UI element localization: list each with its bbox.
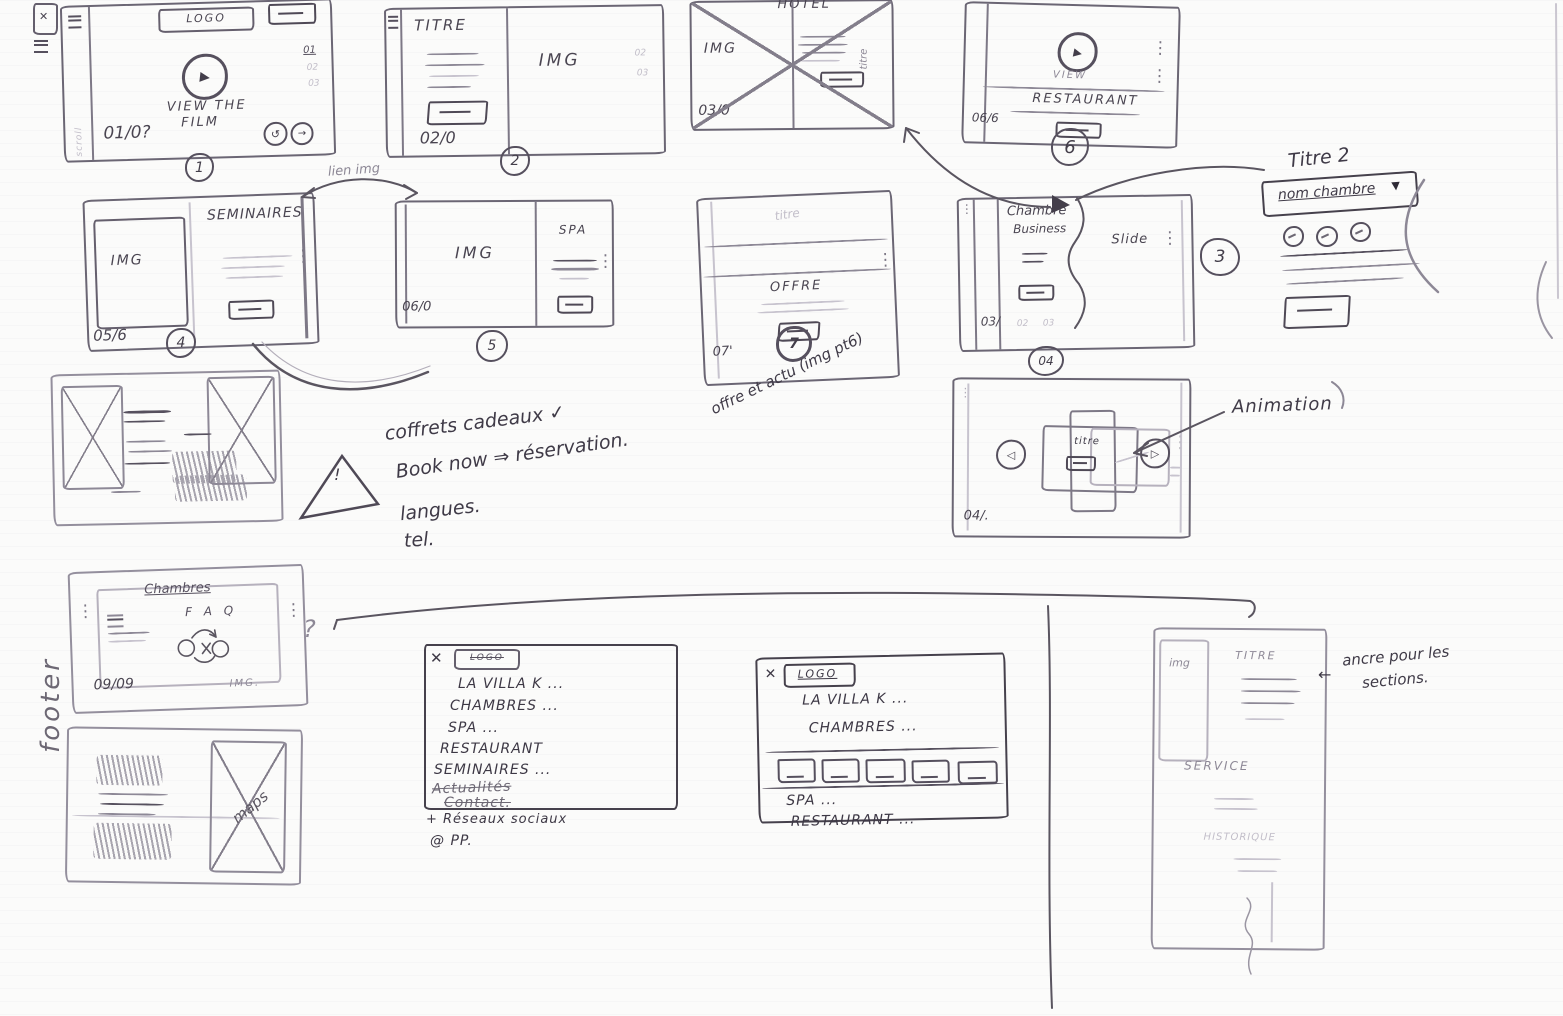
anchor-note-line2: sections. — [1361, 669, 1429, 692]
wireframe-home: LOGO ▶ VIEW THE FILM 01/0? 01 02 03 ↺ → … — [60, 0, 336, 163]
slide-label: Slide — [1111, 233, 1148, 249]
edge-curve-artifact — [1537, 262, 1552, 338]
close-icon: ✕ — [39, 11, 48, 24]
text-line — [427, 53, 479, 56]
menu-item-restaurant: RESTAURANT — [440, 741, 543, 757]
loop-glyph: ↺ — [271, 127, 281, 140]
book-button — [268, 3, 317, 25]
wireframe-collage — [50, 370, 283, 527]
section-title: SPA — [559, 224, 588, 238]
sidebar-divider — [88, 7, 94, 160]
section-historique: HISTORIQUE — [1204, 832, 1276, 844]
amenity-icon — [1283, 226, 1304, 247]
page-badge-5: 5 — [476, 330, 508, 362]
slide-button — [1066, 456, 1096, 471]
text-line — [1170, 475, 1180, 477]
text-line — [221, 265, 285, 269]
page-number: 06/0 — [402, 300, 431, 315]
band-title: titre — [774, 207, 801, 224]
text-line — [761, 300, 845, 306]
amenity-icon — [1350, 222, 1371, 242]
page-number: 03/ — [981, 315, 1001, 329]
text-line — [1241, 690, 1301, 693]
title-label: TITRE — [414, 17, 467, 35]
room-title-line2: Business — [1013, 222, 1066, 237]
col-divider — [973, 200, 978, 350]
warning-exclamation: ! — [334, 466, 340, 484]
view-label: VIEW — [1053, 70, 1087, 82]
prev-glyph: ◁ — [1007, 448, 1016, 461]
lien-img-arrow — [302, 179, 417, 199]
text-line — [222, 255, 292, 259]
text-line — [98, 793, 168, 796]
logo-label: LOGO — [470, 653, 504, 663]
text-line — [1237, 870, 1277, 872]
text-line — [425, 64, 485, 67]
room-thumbnail-icon — [958, 761, 998, 785]
slide-pager-current: 01 — [303, 45, 316, 57]
page-badge-04: 04 — [1028, 346, 1064, 376]
text-line — [126, 440, 166, 443]
img-label: img — [1169, 657, 1190, 670]
page-badge-6: 6 — [1051, 128, 1089, 166]
pager-mark: 02 — [1017, 319, 1029, 330]
text-line — [1241, 678, 1297, 680]
logo-label: LOGO — [186, 12, 226, 26]
more-dots-icon: ⋮ — [876, 250, 894, 271]
room-cta-button — [1283, 295, 1351, 329]
share-icon: ↺ — [263, 122, 288, 147]
note-coffrets: coffrets cadeaux ✓ — [384, 402, 567, 446]
logo-label: LOGO — [798, 668, 838, 681]
page-number: 02/0 — [420, 129, 456, 148]
wireframe-maps: maps — [65, 726, 303, 885]
text-line — [1245, 718, 1285, 720]
right-rail — [1180, 383, 1183, 533]
img-label: IMG — [539, 51, 581, 71]
anchor-arrow-icon: ← — [1318, 666, 1331, 684]
section-title: RESTAURANT — [1032, 92, 1139, 110]
text-line — [757, 308, 849, 314]
text-line — [1280, 249, 1408, 258]
next-icon: ▷ — [1140, 438, 1170, 468]
wireframe-spa: IMG SPA ⋮ 06/0 — [395, 199, 615, 328]
wireframe-menu-thumbs: ✕ LOGO LA VILLA K ... CHAMBRES ... SPA .… — [755, 652, 1008, 823]
menu-item-spa: SPA ... — [448, 720, 499, 736]
wireframe-chambre-business: ⋮ Chambre Business 03/ 02 03 Slide ⋮ — [957, 194, 1196, 352]
room-thumbnail-icon — [865, 759, 905, 784]
page-number: 07' — [712, 345, 733, 361]
play-icon: ▶ — [1057, 32, 1098, 73]
logo-box: LOGO — [783, 663, 855, 689]
more-dots-icon: ⋮ — [1151, 66, 1169, 86]
img-label: IMG — [110, 252, 144, 269]
next-arrow-icon: → — [290, 122, 314, 146]
wireframe-titre: TITRE 02/0 IMG 02 03 — [384, 4, 666, 158]
page-number: 06/6 — [972, 111, 999, 125]
menu-item-spa: SPA ... — [786, 792, 837, 809]
text-line — [123, 410, 171, 414]
slide-pager-3: 03 — [308, 79, 320, 90]
text-line — [128, 450, 172, 453]
menu-item-contact: Contact. — [444, 795, 511, 811]
text-line — [1214, 798, 1254, 800]
band-divider — [703, 268, 891, 278]
sidebar-divider — [400, 10, 404, 156]
dropdown-caret-icon: ▼ — [1391, 180, 1400, 193]
content-divider — [535, 202, 538, 326]
slide-pager-2: 02 — [635, 48, 647, 59]
hamburger-icon — [34, 40, 48, 53]
page-number: 01/0? — [103, 123, 151, 144]
text-line — [100, 803, 164, 806]
more-dots-icon: ⋮ — [285, 600, 303, 621]
text-line — [429, 75, 479, 78]
note-langues: langues. — [399, 496, 482, 526]
map-placeholder-x: maps — [209, 740, 287, 873]
text-line — [551, 268, 599, 271]
menu-pp-link: @ PP. — [430, 833, 473, 849]
page-number: 04/. — [964, 509, 989, 524]
wireframe-hotel-crossed: HOTEL IMG 03/0 titre — [689, 0, 894, 131]
text-line — [1241, 702, 1295, 704]
image-placeholder: IMG — [93, 217, 189, 330]
faq-title: F A Q — [185, 604, 238, 620]
divider-line — [765, 747, 999, 754]
more-dots-icon: ⋮ — [597, 251, 614, 271]
room-title-line1: Chambre — [1007, 204, 1067, 220]
page-badge-1: 1 — [185, 153, 214, 182]
wireframe-seminaires: IMG SEMINAIRES ⋮ 05/6 — [82, 192, 319, 352]
pager-mark: 03 — [1043, 318, 1055, 329]
page-badge-2: 2 — [500, 146, 530, 176]
section-title: SEMINAIRES — [207, 204, 303, 223]
scroll-label: scroll — [74, 112, 86, 156]
scribble-text — [175, 474, 248, 502]
room-thumbnail-icon — [777, 758, 815, 783]
slide-title: titre — [1074, 436, 1100, 448]
text-line — [225, 275, 283, 279]
cta-button — [427, 101, 489, 126]
wireframe-animation: ⋮ ◁ titre ▷ ⋮ 04/. — [952, 377, 1192, 538]
page-number: 09/09 — [93, 676, 134, 693]
play-icon: ▶ — [181, 53, 228, 100]
wireframe-anchor-page: img TITRE SERVICE HISTORIQUE — [1151, 627, 1328, 951]
more-dots-icon: ⋮ — [77, 601, 95, 622]
room-thumbnail-icon — [821, 758, 859, 783]
hamburger-icon — [388, 16, 398, 29]
lien-img-annotation: lien img — [328, 162, 381, 181]
text-line — [559, 278, 589, 280]
wireframe-sketch-sheet: ✕ LOGO ▶ VIEW THE FILM 01/0? 01 02 03 ↺ … — [0, 0, 1563, 1016]
view-the-film-label: VIEW THE — [167, 99, 247, 116]
text-line — [123, 420, 165, 423]
more-dots-icon: ⋮ — [961, 202, 973, 216]
view-the-film-label2: FILM — [181, 115, 219, 131]
page-number: 05/6 — [93, 327, 127, 345]
question-mark-annotation: ? — [303, 616, 316, 644]
section-title: TITRE — [1235, 650, 1276, 663]
content-divider — [506, 8, 510, 154]
right-rail — [1181, 200, 1185, 341]
titre2-label: Titre 2 — [1287, 145, 1351, 173]
cta-button — [228, 299, 275, 320]
wireframe-restaurant: ▶ VIEW ⋮ ⋮ RESTAURANT 06/6 — [961, 1, 1181, 149]
cta-button — [557, 296, 593, 314]
slide-pager-3: 03 — [637, 68, 649, 79]
text-line — [124, 462, 170, 465]
text-line — [1286, 277, 1404, 285]
img-label: IMG. — [229, 678, 260, 691]
prev-icon: ◁ — [996, 440, 1026, 470]
img-label: IMG — [455, 244, 495, 263]
room-dropdown: nom chambre ▼ — [1261, 171, 1419, 218]
image-placeholder-x — [61, 385, 125, 490]
text-line — [1214, 808, 1258, 810]
page-badge-4: 4 — [166, 328, 196, 358]
hamburger-icon — [68, 15, 81, 28]
menu-item-lavillak: LA VILLA K ... — [458, 676, 564, 692]
menu-social-links: + Réseaux sociaux — [426, 812, 567, 827]
amenity-icon — [1316, 226, 1338, 247]
close-icon: ✕ — [430, 650, 443, 667]
edge-line-artifact — [1556, 4, 1558, 298]
section-service: SERVICE — [1184, 760, 1249, 774]
menu-item-chambres: CHAMBRES ... — [450, 698, 559, 714]
crossed-out-x — [691, 1, 892, 129]
animation-annotation: Animation — [1232, 394, 1333, 418]
more-dots-icon: ⋮ — [1151, 38, 1169, 58]
page-badge-3: 3 — [1200, 238, 1240, 276]
menu-item-lavillak: LA VILLA K ... — [802, 690, 908, 708]
band-divider — [704, 238, 888, 248]
wireframe-faq: ⋮ ⋮ Chambres F A Q 09/09 IMG. — [68, 564, 309, 714]
divider-line — [762, 782, 1004, 789]
text-line — [1233, 858, 1281, 860]
slide-pager-2: 02 — [307, 63, 319, 74]
next-glyph: ▷ — [1151, 447, 1160, 460]
logo-box: LOGO — [158, 6, 255, 33]
more-dots-icon: ⋮ — [959, 385, 971, 399]
text-line — [1022, 261, 1044, 263]
edge-artifact-box: ✕ — [33, 3, 58, 35]
doodle-icon — [171, 620, 242, 666]
logo-box: LOGO — [454, 649, 520, 670]
play-glyph: ▶ — [199, 69, 211, 85]
arrow-glyph: → — [298, 128, 307, 139]
text-line — [553, 260, 597, 262]
cta-button — [1018, 284, 1054, 301]
menu-item-seminaires: SEMINAIRES ... — [434, 762, 551, 778]
play-glyph: ▶ — [1072, 45, 1083, 59]
menu-item-chambres: CHAMBRES ... — [809, 718, 918, 736]
more-dots-icon: ⋮ — [1161, 228, 1178, 248]
text-line — [1282, 262, 1420, 271]
scribble-text — [93, 823, 171, 860]
menu-item-restaurant: RESTAURANT ... — [791, 811, 916, 830]
strikethrough-title: Chambres — [144, 581, 211, 598]
footer-label: footer — [37, 625, 67, 785]
maps-label: maps — [229, 788, 272, 827]
room-dropdown-value: nom chambre — [1277, 181, 1375, 204]
underline — [1010, 110, 1140, 115]
text-line — [1022, 252, 1048, 254]
right-rail — [300, 196, 308, 338]
anchor-note-line1: ancre pour les — [1341, 643, 1450, 670]
hamburger-icon — [107, 614, 123, 628]
inner-divider — [1271, 882, 1274, 942]
text-line — [111, 491, 141, 494]
note-tel: tel. — [403, 529, 435, 553]
image-placeholder: img — [1158, 639, 1209, 761]
vertical-divider-line — [1048, 606, 1052, 1008]
content-divider — [189, 202, 196, 338]
scribble-text — [96, 755, 162, 786]
wireframe-menu-list: ✕ LOGO LA VILLA K ... CHAMBRES ... SPA .… — [424, 644, 678, 849]
text-line — [427, 86, 471, 89]
room-thumbnail-icon — [911, 760, 949, 784]
footer-separator-line — [334, 593, 1255, 629]
close-icon: ✕ — [764, 666, 776, 682]
section-title: OFFRE — [770, 279, 823, 296]
